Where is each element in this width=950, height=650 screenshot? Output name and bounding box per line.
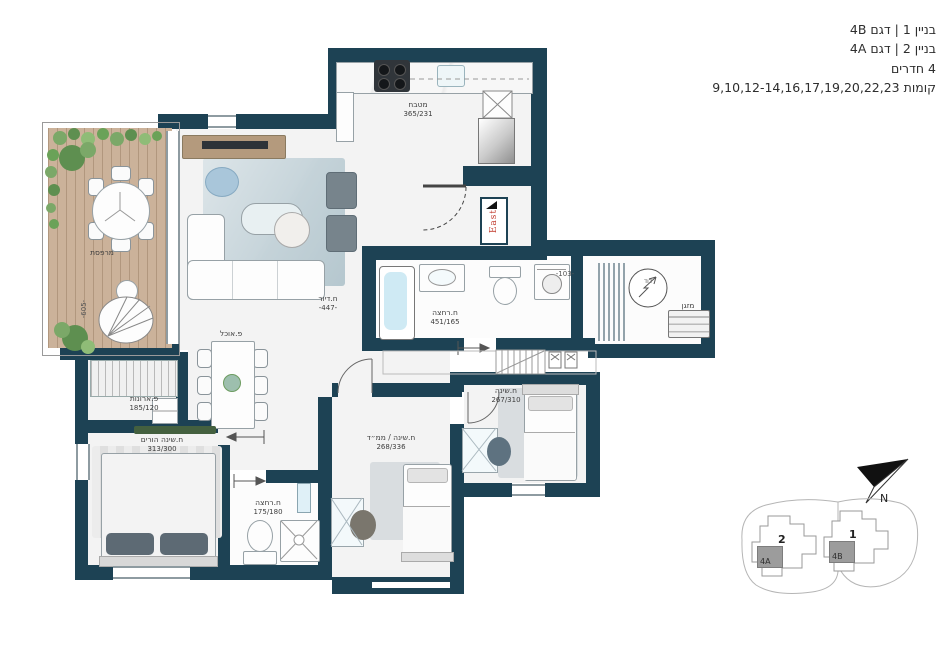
dining-chair bbox=[253, 349, 268, 368]
site-unit-4a: 4A bbox=[757, 546, 783, 568]
wall-segment bbox=[75, 480, 88, 577]
shaft-symbols bbox=[549, 352, 577, 368]
kitchen-counter bbox=[336, 62, 533, 94]
wall-segment bbox=[463, 166, 531, 186]
window bbox=[76, 444, 90, 480]
site-building-1-number: 1 bbox=[849, 528, 857, 541]
dining-chair bbox=[197, 402, 212, 421]
wall-segment bbox=[452, 483, 512, 497]
bed-parents-label: ח.שינה הורים313/300 bbox=[122, 435, 202, 454]
title-line-building1: בניין 1 | דגם 4B bbox=[712, 20, 936, 39]
bath-vanity bbox=[419, 264, 465, 292]
site-building-2-number: 2 bbox=[778, 533, 786, 546]
refrigerator bbox=[478, 118, 515, 164]
pillow bbox=[160, 533, 208, 555]
wall-segment bbox=[362, 246, 545, 260]
armchair bbox=[326, 172, 357, 209]
wall-segment bbox=[236, 114, 344, 129]
wall-segment bbox=[372, 383, 462, 397]
wall-segment bbox=[328, 48, 545, 62]
entrance-logo-text: East bbox=[489, 209, 499, 233]
title-block: בניין 1 | דגם 4B בניין 2 | דגם 4A 4 חדרי… bbox=[712, 20, 936, 98]
title-line-rooms: 4 חדרים bbox=[712, 59, 936, 78]
window bbox=[512, 484, 545, 496]
window-wall-balcony bbox=[166, 131, 180, 344]
balcony-chair bbox=[111, 166, 131, 181]
dining-chair bbox=[197, 376, 212, 395]
pillow bbox=[407, 468, 448, 483]
closet-label: פ.ארונות185/120 bbox=[118, 394, 170, 413]
title-line-building2: בניין 2 | דגם 4A bbox=[712, 39, 936, 58]
blanket bbox=[524, 432, 575, 480]
footboard bbox=[401, 552, 454, 562]
wall-segment bbox=[586, 372, 600, 497]
title-line-floors: קומות 9,10,12-14,16,17,19,20,22,23 bbox=[712, 78, 936, 97]
window bbox=[208, 115, 236, 128]
bathtub bbox=[379, 266, 415, 340]
wall-segment bbox=[588, 344, 715, 358]
wall-segment bbox=[75, 352, 88, 444]
boiler-label: דוד bbox=[640, 278, 656, 285]
wall-segment bbox=[362, 338, 464, 351]
wall-segment bbox=[318, 397, 332, 577]
mamad-security-window bbox=[372, 582, 450, 588]
floor-plan-sheet: בניין 1 | דגם 4B בניין 2 | דגם 4A 4 חדרי… bbox=[0, 0, 950, 650]
kitchen-label: מטבח365/231 bbox=[386, 100, 450, 119]
coffee-table-marble bbox=[274, 212, 310, 248]
wall-segment bbox=[545, 240, 715, 256]
living-label: ח.דיור-447- bbox=[296, 294, 360, 313]
entry-dim-label: -103- bbox=[548, 270, 582, 278]
dining-label: פ.אוכל bbox=[202, 329, 260, 339]
knot-pouf bbox=[205, 167, 239, 197]
wall-segment bbox=[450, 385, 464, 392]
dining-chair bbox=[253, 376, 268, 395]
wall-segment bbox=[190, 565, 332, 580]
toilet-bowl-2 bbox=[247, 520, 273, 552]
bed-mamad-label: ח.שינה / ממ״ד268/336 bbox=[346, 433, 436, 452]
wall-segment bbox=[362, 258, 376, 350]
desk-chair bbox=[487, 437, 511, 466]
ac-unit bbox=[668, 310, 710, 338]
kitchen-sink bbox=[437, 65, 465, 87]
wall-segment bbox=[75, 565, 113, 580]
armchair bbox=[326, 215, 357, 252]
desk-chair bbox=[350, 510, 376, 540]
shower bbox=[280, 520, 320, 562]
living-depth-dim: -605- bbox=[80, 287, 88, 331]
toilet-tank-2 bbox=[243, 551, 277, 565]
wall-segment bbox=[531, 48, 547, 260]
pillow bbox=[106, 533, 154, 555]
balcony-table bbox=[92, 182, 150, 240]
dining-chair bbox=[197, 349, 212, 368]
stairs bbox=[496, 350, 545, 374]
closet-rail bbox=[90, 360, 178, 397]
site-unit-4a-label: 4A bbox=[760, 557, 771, 566]
toilet-bowl bbox=[493, 277, 517, 305]
bed-right-label: ח.שינה267/310 bbox=[478, 386, 534, 405]
bath-mirror bbox=[297, 483, 311, 513]
table-centerpiece bbox=[223, 374, 241, 392]
site-unit-4b: 4B bbox=[829, 541, 855, 563]
wall-segment bbox=[266, 470, 320, 483]
bed-bench bbox=[134, 426, 216, 434]
cooktop bbox=[374, 60, 410, 92]
balcony-side-table bbox=[116, 280, 138, 302]
balcony-label: מרפסת bbox=[78, 248, 126, 258]
bath-main-label: ח.רחצה451/165 bbox=[410, 308, 480, 327]
wall-segment bbox=[332, 383, 338, 397]
tv bbox=[202, 141, 268, 149]
site-unit-4b-label: 4B bbox=[832, 552, 843, 561]
bath-small-label: ח.רחצה175/180 bbox=[238, 498, 298, 517]
north-label: N bbox=[880, 492, 888, 505]
kitchen-tall-cabinet bbox=[336, 92, 354, 142]
window bbox=[113, 566, 190, 579]
dining-chair bbox=[253, 402, 268, 421]
ac-label: מזגן bbox=[668, 301, 708, 311]
pillow bbox=[528, 396, 573, 411]
